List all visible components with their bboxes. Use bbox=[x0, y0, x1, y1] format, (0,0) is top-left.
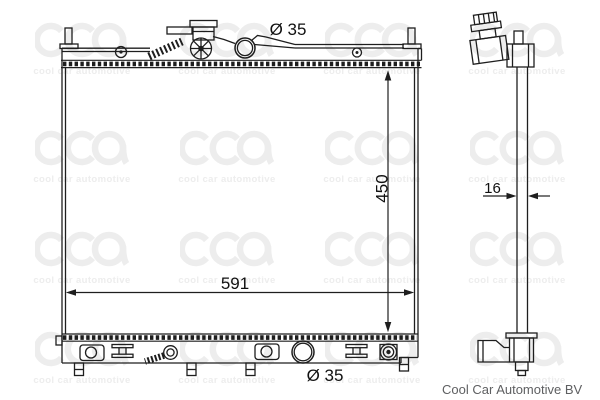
mount-bush-left bbox=[80, 345, 104, 361]
front-view bbox=[56, 21, 422, 376]
mount-feet bbox=[75, 358, 409, 376]
drain-cock-icon bbox=[145, 346, 177, 362]
radiator-technical-drawing: cool car automotive cool car automotive … bbox=[0, 0, 600, 400]
outlet-port-circle bbox=[292, 341, 314, 363]
radiator-core bbox=[62, 48, 418, 363]
side-bottom-tank bbox=[478, 333, 537, 376]
dimension-lines bbox=[66, 70, 550, 332]
top-serrated-band bbox=[61, 60, 422, 67]
side-filler-neck bbox=[507, 31, 534, 67]
side-core-column bbox=[517, 67, 528, 333]
spring-hose-icon bbox=[149, 42, 182, 57]
dim-label-core-width: 591 bbox=[207, 274, 263, 294]
filler-cap-assembly bbox=[167, 21, 217, 60]
dim-label-bottom-diameter: Ø 35 bbox=[297, 366, 353, 386]
top-tank bbox=[60, 21, 422, 68]
mount-pin-top-left bbox=[65, 28, 72, 44]
dim-label-top-diameter: Ø 35 bbox=[258, 20, 318, 40]
radiator-drawing-svg bbox=[0, 0, 600, 400]
bottom-tank bbox=[56, 334, 418, 376]
filler-port-circle bbox=[235, 38, 255, 58]
side-filler-cap bbox=[466, 11, 508, 64]
clip-bracket-left bbox=[112, 345, 133, 358]
bottom-serrated-band bbox=[62, 334, 418, 341]
dim-label-thickness: 16 bbox=[474, 180, 511, 197]
threaded-fitting-icon bbox=[380, 344, 397, 360]
footer-brand-text: Cool Car Automotive BV bbox=[442, 382, 578, 397]
mount-bush-right bbox=[255, 344, 279, 360]
cap-wheel-icon bbox=[191, 38, 212, 59]
mount-pin-top-right bbox=[408, 28, 415, 44]
dim-label-core-height: 450 bbox=[372, 167, 389, 211]
clip-bracket-right bbox=[346, 345, 367, 358]
